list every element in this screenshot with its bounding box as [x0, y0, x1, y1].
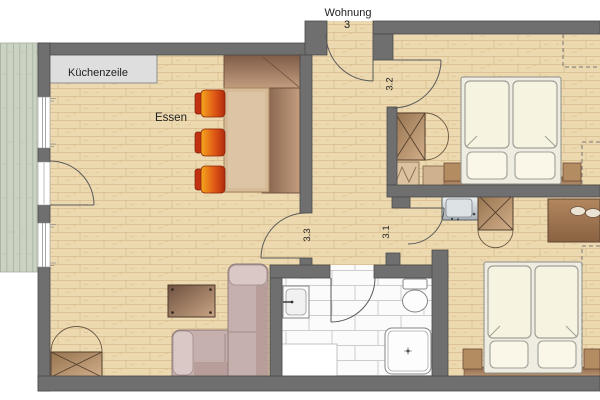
bathroom-counter: [282, 344, 337, 376]
shower: [385, 328, 431, 374]
double-bed-bottom: [484, 262, 582, 373]
apartment-label-line2: 3: [344, 19, 350, 31]
dining-area-label: Essen: [155, 112, 187, 124]
dining-chair: [195, 129, 225, 156]
dining-chair: [195, 90, 225, 117]
floorplan-canvas: Wohnung 3 Küchenzeile Essen 3.2 3.3 3.1: [0, 0, 600, 400]
door-number-3-3: 3.3: [302, 228, 313, 241]
door-number-3-2: 3.2: [385, 77, 396, 90]
double-bed-top: [461, 77, 561, 184]
dining-table: [224, 88, 269, 192]
nightstand: [423, 166, 445, 186]
door-number-3-1: 3.1: [381, 225, 392, 238]
kitchen-unit-label: Küchenzeile: [68, 67, 128, 79]
dresser: [548, 199, 600, 242]
dining-chair: [195, 166, 225, 193]
bedroom-washbasin: [442, 196, 478, 221]
apartment-label-line1: Wohnung: [325, 7, 372, 19]
coffee-table: [168, 285, 215, 317]
balcony-deck: [0, 43, 37, 272]
toilet: [403, 279, 428, 312]
bathroom-washbasin: [283, 286, 309, 318]
